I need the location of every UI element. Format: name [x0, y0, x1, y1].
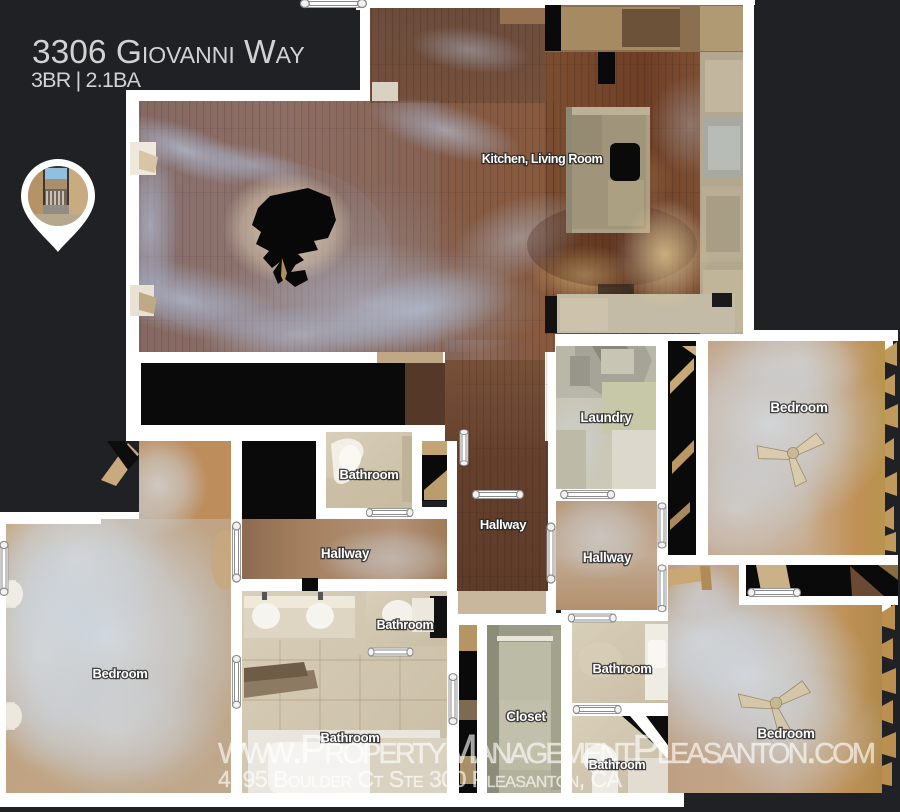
svg-text:4695 Boulder Ct Ste 300 Pleasa: 4695 Boulder Ct Ste 300 Pleasanton, CA — [218, 766, 623, 792]
svg-text:Bedroom: Bedroom — [93, 666, 148, 681]
svg-text:Bathroom: Bathroom — [377, 618, 434, 632]
svg-text:3306 Giovanni Way: 3306 Giovanni Way — [32, 34, 305, 71]
svg-text:Hallway: Hallway — [321, 546, 370, 561]
svg-text:Closet: Closet — [506, 709, 546, 724]
svg-text:Bathroom: Bathroom — [340, 467, 399, 482]
svg-text:Laundry: Laundry — [580, 410, 632, 425]
svg-text:Hallway: Hallway — [480, 517, 527, 532]
svg-text:Bathroom: Bathroom — [593, 661, 652, 676]
svg-text:3BR | 2.1BA: 3BR | 2.1BA — [31, 68, 142, 92]
svg-text:Kitchen, Living Room: Kitchen, Living Room — [482, 152, 603, 166]
svg-text:Bedroom: Bedroom — [770, 400, 827, 415]
svg-text:Hallway: Hallway — [583, 550, 632, 565]
